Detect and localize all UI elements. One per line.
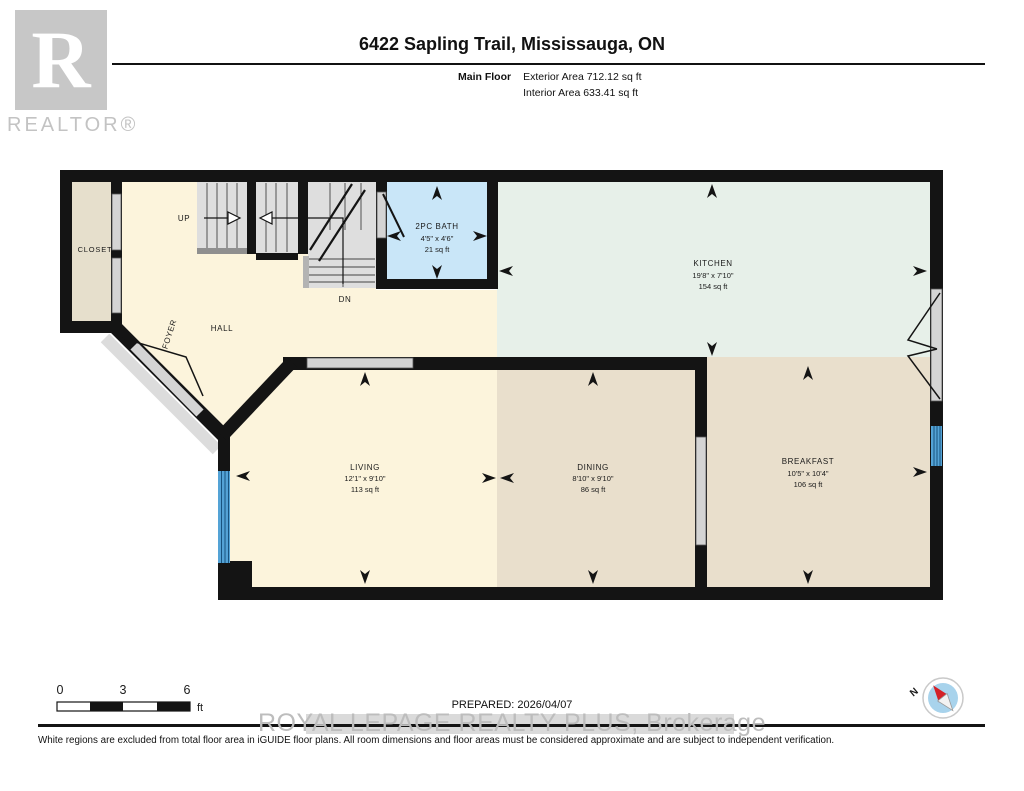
stairs-up-label: UP [178, 214, 190, 223]
kitchen-dims: 19'8" x 7'10" [692, 271, 733, 280]
scale-tick-6: 6 [184, 683, 191, 697]
kitchen-name: KITCHEN [693, 259, 732, 268]
room-kitchen [497, 182, 933, 357]
hall-label: HALL [211, 324, 233, 333]
living-dims: 12'1" x 9'10" [344, 474, 385, 483]
compass-north-label: N [908, 686, 921, 699]
scale-tick-0: 0 [57, 683, 64, 697]
breakfast-dims: 10'5" x 10'4" [787, 469, 828, 478]
disclaimer-text: White regions are excluded from total fl… [38, 735, 994, 746]
brokerage-watermark: ROYAL LEPAGE REALTY PLUS, Brokerage [0, 709, 1024, 738]
stair-railing [303, 256, 309, 288]
hall-living-opening [307, 358, 413, 368]
dining-dims: 8'10" x 9'10" [572, 474, 613, 483]
breakfast-name: BREAKFAST [782, 457, 835, 466]
bath-name: 2PC BATH [415, 222, 458, 231]
floor-plan-page: R REALTOR® 6422 Sapling Trail, Mississau… [0, 0, 1024, 791]
closet-label: CLOSET [78, 245, 113, 254]
breakfast-area: 106 sq ft [794, 480, 824, 489]
bath-area: 21 sq ft [425, 245, 451, 254]
dining-area: 86 sq ft [581, 485, 607, 494]
floor-plan: CLOSET UP DN HALL FOYER 2PC BATH 4'5" x … [0, 0, 1024, 791]
bath-dims: 4'5" x 4'6" [421, 234, 454, 243]
closet-door [112, 258, 121, 313]
dining-breakfast-opening [696, 437, 706, 545]
living-area: 113 sq ft [351, 485, 380, 494]
closet-door [112, 194, 121, 250]
patio-door-opening [931, 289, 942, 401]
stairs-down-label: DN [339, 295, 352, 304]
living-name: LIVING [350, 463, 380, 472]
dining-name: DINING [577, 463, 609, 472]
kitchen-area: 154 sq ft [699, 282, 729, 291]
scale-tick-3: 3 [120, 683, 127, 697]
